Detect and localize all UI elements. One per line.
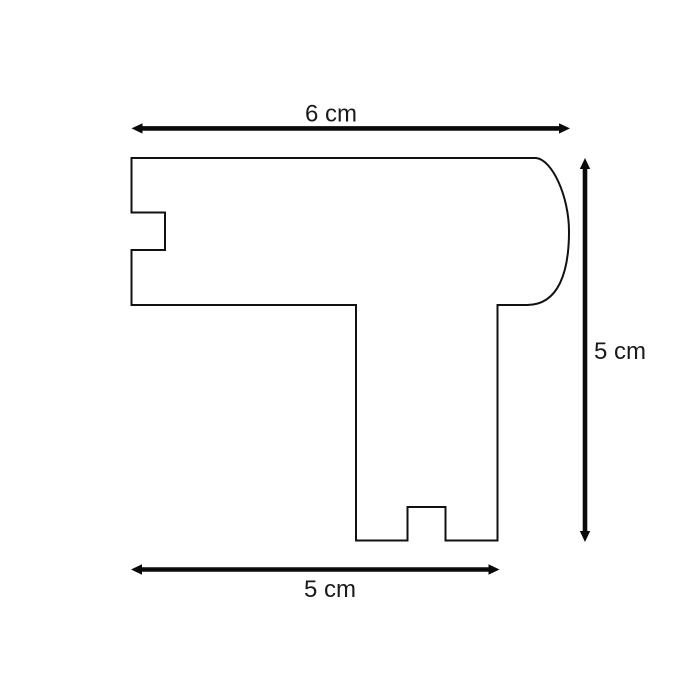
svg-text:5 cm: 5 cm [304,576,356,603]
svg-text:6 cm: 6 cm [305,101,357,128]
svg-text:5 cm: 5 cm [594,338,646,365]
